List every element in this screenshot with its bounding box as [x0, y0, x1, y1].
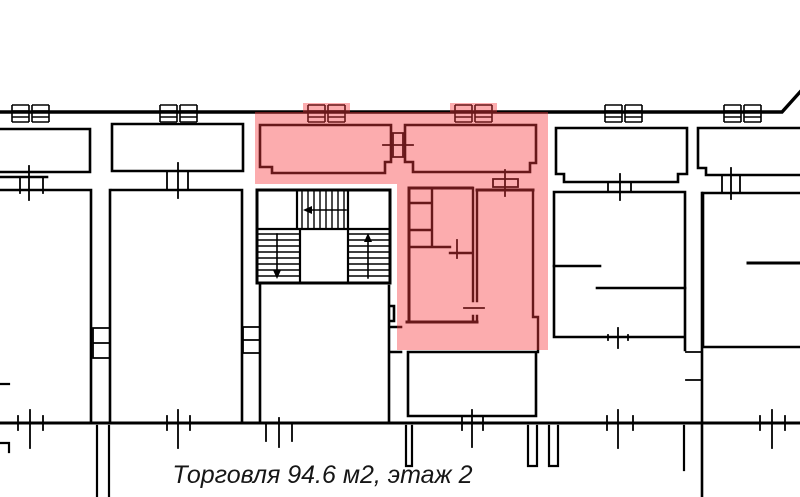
shaft-box-right: [686, 352, 702, 380]
room-below-staircase: [260, 283, 401, 423]
shaft-box-left: [93, 328, 110, 358]
door-bottom-1: [18, 410, 43, 448]
room-top-5: [556, 128, 687, 182]
room-far-right: [703, 193, 800, 347]
door-bottom-6: [760, 410, 785, 448]
stair-direction-lines: [277, 210, 368, 278]
exterior-wall: [0, 92, 800, 112]
partial-walls: [554, 266, 685, 288]
stair-arrowheads: [273, 206, 372, 279]
door-top-right: [722, 168, 740, 199]
floor-plan-page: Торговля 94.6 м2, этаж 2: [0, 0, 800, 497]
plan-caption: Торговля 94.6 м2, этаж 2: [150, 461, 495, 490]
room-top-left: [0, 129, 90, 177]
door-top-5: [608, 174, 631, 200]
door-bottom-5: [607, 410, 633, 448]
room-lower-left: [0, 190, 91, 423]
highlighted-unit-area[interactable]: [255, 103, 548, 350]
room-lower-2: [112, 190, 242, 423]
floor-plan: [0, 0, 800, 497]
shaft-box-mid: [243, 327, 260, 353]
room-top-right: [698, 128, 800, 175]
room-mid-right: [554, 192, 685, 350]
right-rooms: [554, 192, 800, 497]
door-top-2: [167, 163, 188, 198]
room-below-unit: [408, 352, 536, 416]
staircase: [257, 190, 390, 283]
door-bottom-2: [167, 410, 190, 448]
